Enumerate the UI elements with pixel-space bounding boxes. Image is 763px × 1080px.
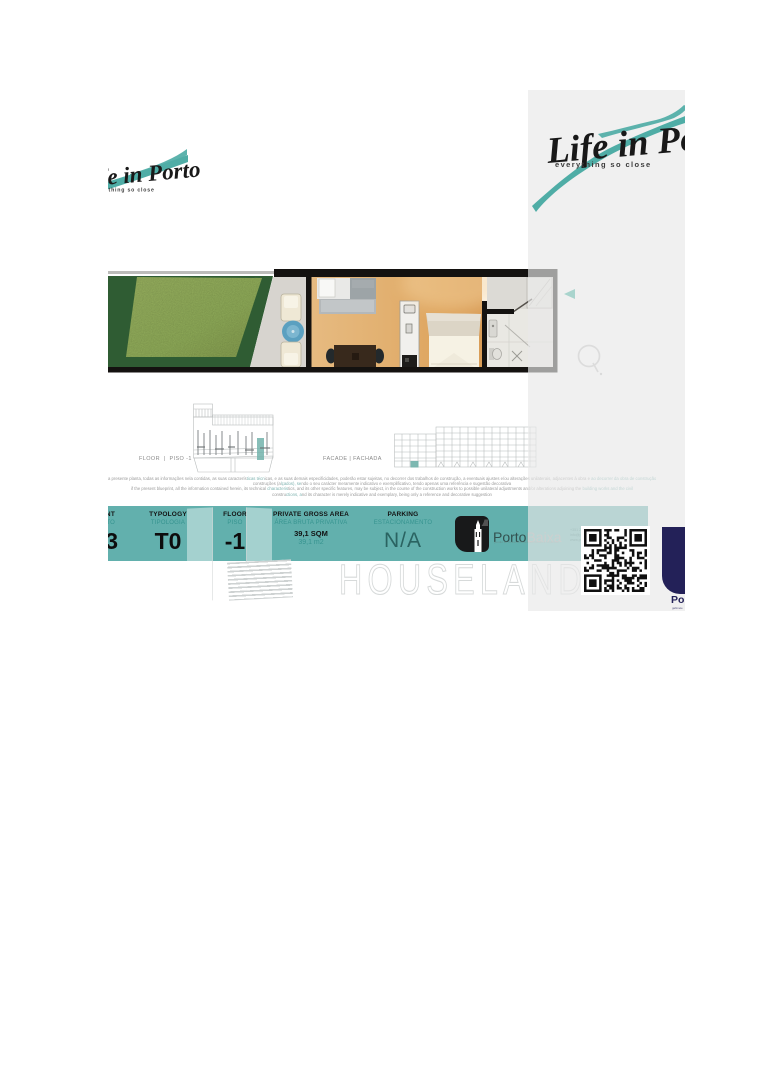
svg-text:everything so close: everything so close (555, 160, 652, 169)
svg-text:everything so close: everything so close (108, 188, 155, 194)
